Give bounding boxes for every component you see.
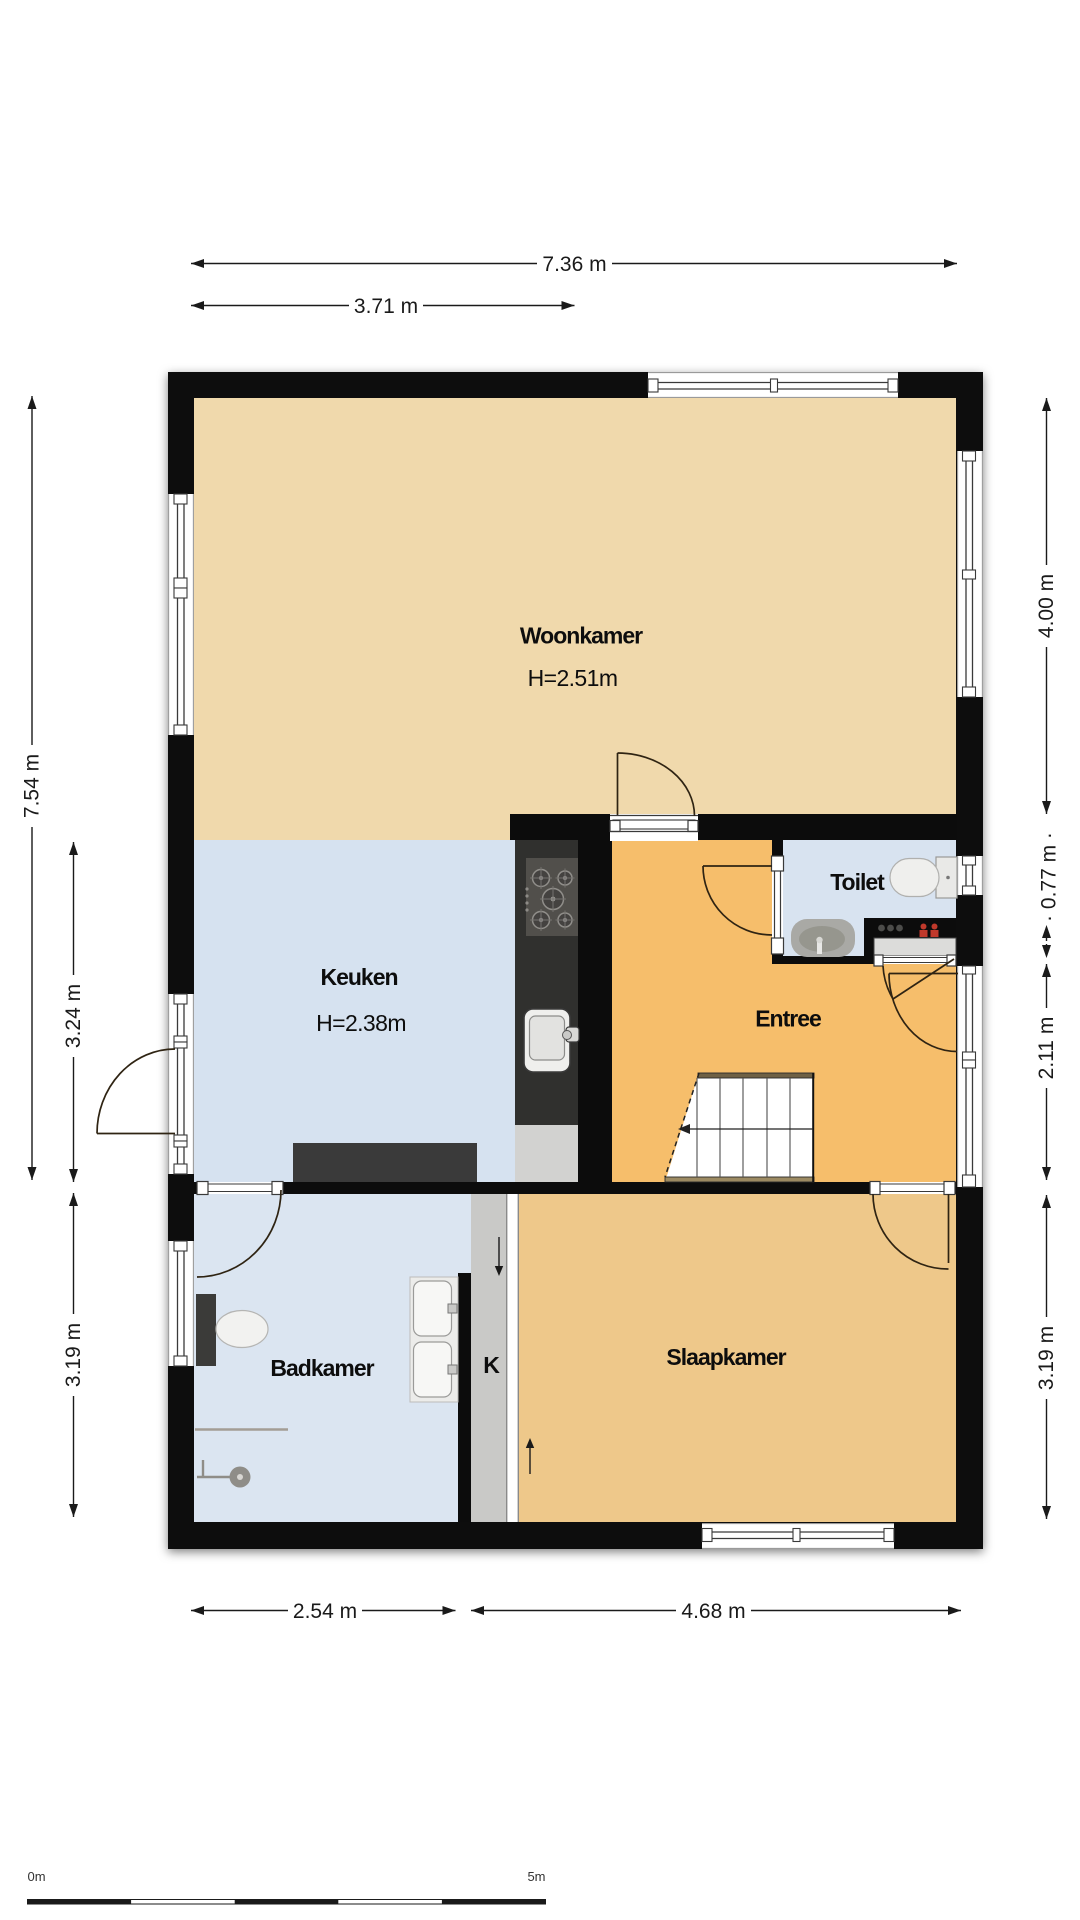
svg-text:3.19 m: 3.19 m	[1035, 1326, 1058, 1390]
svg-text:4.68 m: 4.68 m	[681, 1600, 745, 1623]
svg-text:Woonkamer: Woonkamer	[520, 623, 643, 649]
svg-text:Toilet: Toilet	[830, 869, 885, 895]
svg-text:3.19 m: 3.19 m	[62, 1323, 85, 1387]
svg-text:7.54 m: 7.54 m	[21, 754, 44, 818]
svg-text:3.71 m: 3.71 m	[354, 295, 418, 318]
svg-text:Entree: Entree	[755, 1006, 821, 1032]
svg-text:H=2.38m: H=2.38m	[316, 1010, 406, 1036]
svg-text:2.11 m: 2.11 m	[1035, 1017, 1058, 1080]
svg-text:Badkamer: Badkamer	[270, 1355, 374, 1381]
svg-text:5m: 5m	[527, 1869, 545, 1884]
svg-text:2.54 m: 2.54 m	[293, 1600, 357, 1623]
svg-text:Slaapkamer: Slaapkamer	[666, 1344, 786, 1370]
svg-text:3.24 m: 3.24 m	[62, 984, 85, 1048]
svg-text:H=2.51m: H=2.51m	[528, 665, 618, 691]
svg-text:Keuken: Keuken	[320, 964, 397, 990]
svg-text:7.36 m: 7.36 m	[542, 253, 606, 276]
svg-text:· 0.77 m ·: · 0.77 m ·	[1038, 832, 1061, 922]
svg-text:K: K	[483, 1352, 500, 1378]
svg-text:0m: 0m	[28, 1869, 46, 1884]
svg-text:4.00 m: 4.00 m	[1035, 574, 1058, 638]
